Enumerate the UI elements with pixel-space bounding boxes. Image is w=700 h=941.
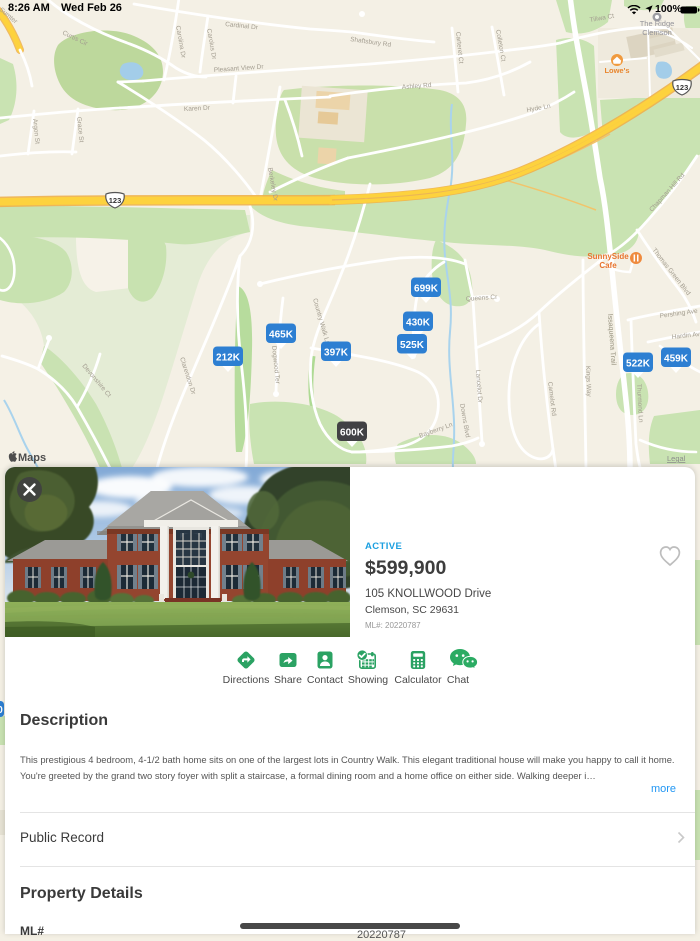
svg-text:Maps: Maps (18, 452, 46, 464)
svg-text:459K: 459K (664, 353, 689, 364)
svg-text:Legal: Legal (667, 454, 686, 463)
svg-text:123: 123 (109, 196, 122, 205)
svg-text:430K: 430K (406, 317, 431, 328)
svg-text:123: 123 (676, 83, 689, 92)
svg-text:699K: 699K (414, 283, 439, 294)
svg-text:212K: 212K (216, 352, 241, 363)
svg-text:Cafe: Cafe (599, 261, 617, 270)
svg-text:Karen Dr: Karen Dr (184, 105, 211, 113)
svg-text:Lowe's: Lowe's (604, 66, 629, 75)
svg-text:397K: 397K (324, 347, 349, 358)
svg-text:Clemson: Clemson (642, 28, 672, 37)
svg-text:The Ridge: The Ridge (640, 19, 675, 28)
svg-text:Kings Way: Kings Way (584, 366, 592, 398)
svg-text:0: 0 (0, 705, 3, 716)
svg-text:522K: 522K (626, 358, 651, 369)
svg-text:525K: 525K (400, 340, 425, 351)
svg-text:600K: 600K (340, 427, 365, 438)
svg-text:SunnySide: SunnySide (587, 252, 629, 261)
svg-text:465K: 465K (269, 329, 294, 340)
